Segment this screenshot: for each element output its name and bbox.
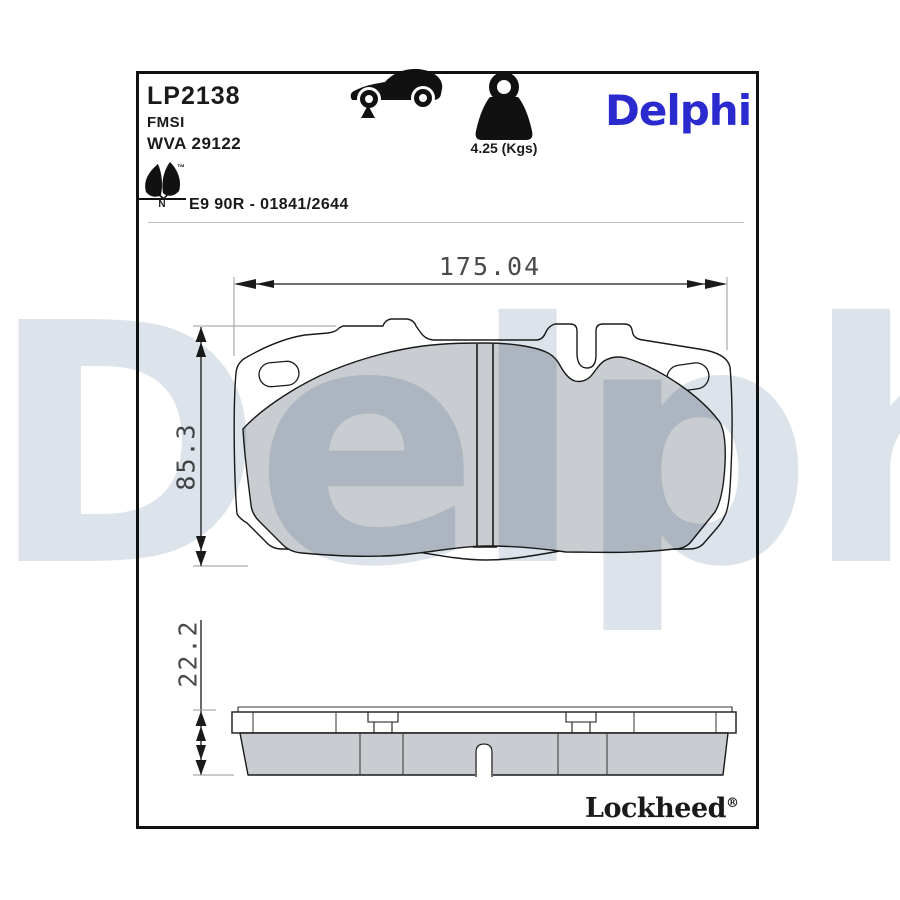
car-front-axle-icon [344,64,448,129]
weight-icon [466,68,546,149]
friction-notch [475,743,493,777]
dimension-thickness [193,620,234,775]
backplate-hole-left [258,360,300,387]
side-view [232,707,736,777]
side-view-backplate [232,712,736,733]
brake-pad-datasheet: LP2138 FMSI WVA 29122 E9 90R - 01841/264… [0,0,900,900]
eco-leaf-icon [134,158,190,209]
